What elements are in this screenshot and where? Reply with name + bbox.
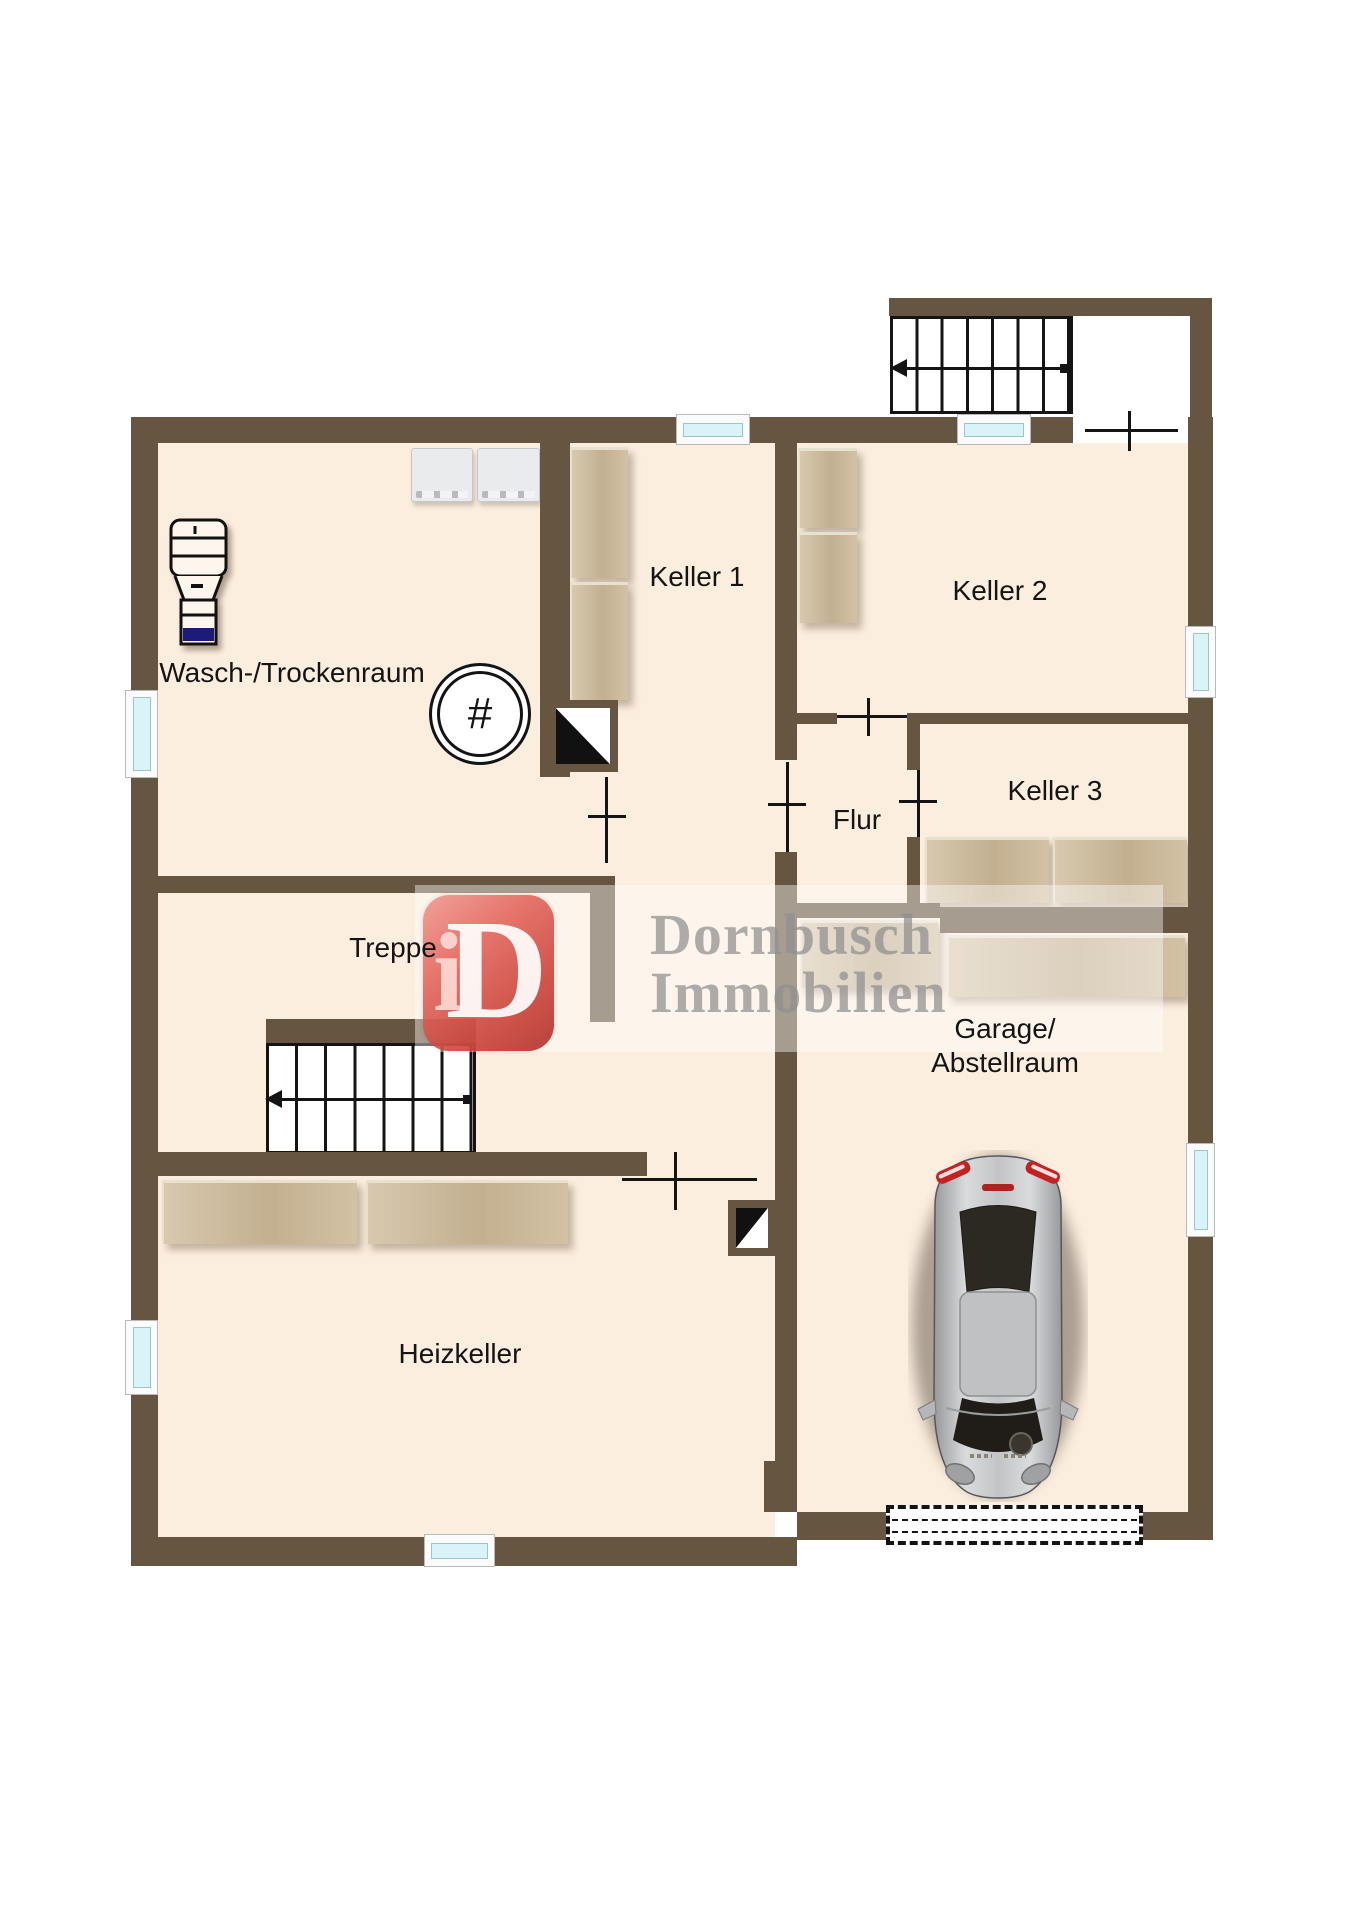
- door-line: [837, 715, 907, 718]
- room-label-treppe: Treppe: [349, 931, 437, 965]
- washing-machine: [411, 448, 473, 502]
- door-line: [622, 1178, 757, 1181]
- floor-plan: #: [0, 0, 1357, 1920]
- door-line: [786, 762, 789, 852]
- door-line: [605, 777, 608, 863]
- logo-letter-d: D: [445, 895, 548, 1051]
- shelf: [798, 448, 857, 528]
- window: [1185, 626, 1216, 698]
- door-line: [1085, 429, 1178, 432]
- room-label-garage-line2: Abstellraum: [931, 1046, 1079, 1080]
- floor-drain-symbol: #: [429, 663, 531, 765]
- door-tick: [867, 698, 870, 736]
- shelf: [570, 447, 628, 578]
- door-tick: [588, 815, 626, 818]
- room-label-wasch: Wasch-/Trockenraum: [159, 656, 425, 690]
- window: [125, 1320, 158, 1395]
- wall-segment: [1143, 1512, 1213, 1540]
- staircase-treppe: [266, 1043, 476, 1154]
- wall-segment: [764, 1461, 797, 1512]
- room-label-garage: Garage/ Abstellraum: [931, 1012, 1079, 1079]
- wall-segment: [131, 1152, 647, 1176]
- door-line: [917, 770, 920, 837]
- window: [125, 690, 158, 778]
- wall-segment: [889, 298, 1212, 316]
- wall-segment: [907, 713, 920, 770]
- shelf: [162, 1180, 357, 1244]
- wall-segment: [797, 1512, 890, 1540]
- car-top-view: [908, 1150, 1088, 1502]
- door-tick: [1128, 411, 1131, 451]
- wall-segment: [797, 713, 837, 724]
- staircase-exterior: [890, 316, 1073, 414]
- shelf: [570, 582, 628, 700]
- wall-segment: [775, 443, 797, 760]
- washing-machine: [477, 448, 540, 502]
- watermark-line1: Dornbusch: [650, 901, 933, 968]
- window: [957, 414, 1031, 445]
- vent-symbol-icon: [728, 1200, 776, 1256]
- wall-segment: [1188, 417, 1213, 1540]
- garage-door: [886, 1505, 1143, 1545]
- window: [1186, 1143, 1215, 1237]
- wall-segment: [907, 713, 1188, 724]
- room-label-keller1: Keller 1: [650, 560, 745, 594]
- room-label-keller2: Keller 2: [953, 574, 1048, 608]
- wall-segment: [131, 417, 1073, 443]
- shelf: [798, 532, 857, 623]
- wall-segment: [1190, 298, 1212, 417]
- window: [676, 414, 750, 445]
- room-label-keller3: Keller 3: [1008, 774, 1103, 808]
- room-label-flur: Flur: [833, 803, 881, 837]
- door-tick: [899, 800, 937, 803]
- drain-hash: #: [468, 689, 492, 739]
- room-label-garage-line1: Garage/: [931, 1012, 1079, 1046]
- watermark-line2: Immobilien: [650, 959, 947, 1026]
- shelf: [366, 1180, 568, 1244]
- door-tick: [674, 1152, 677, 1210]
- ladder-stair-icon: [167, 516, 230, 648]
- door-tick: [768, 803, 806, 806]
- vent-symbol-icon: [548, 700, 618, 772]
- room-label-heizkeller: Heizkeller: [399, 1337, 522, 1371]
- window: [424, 1534, 495, 1567]
- brand-logo-icon: i D: [423, 895, 554, 1051]
